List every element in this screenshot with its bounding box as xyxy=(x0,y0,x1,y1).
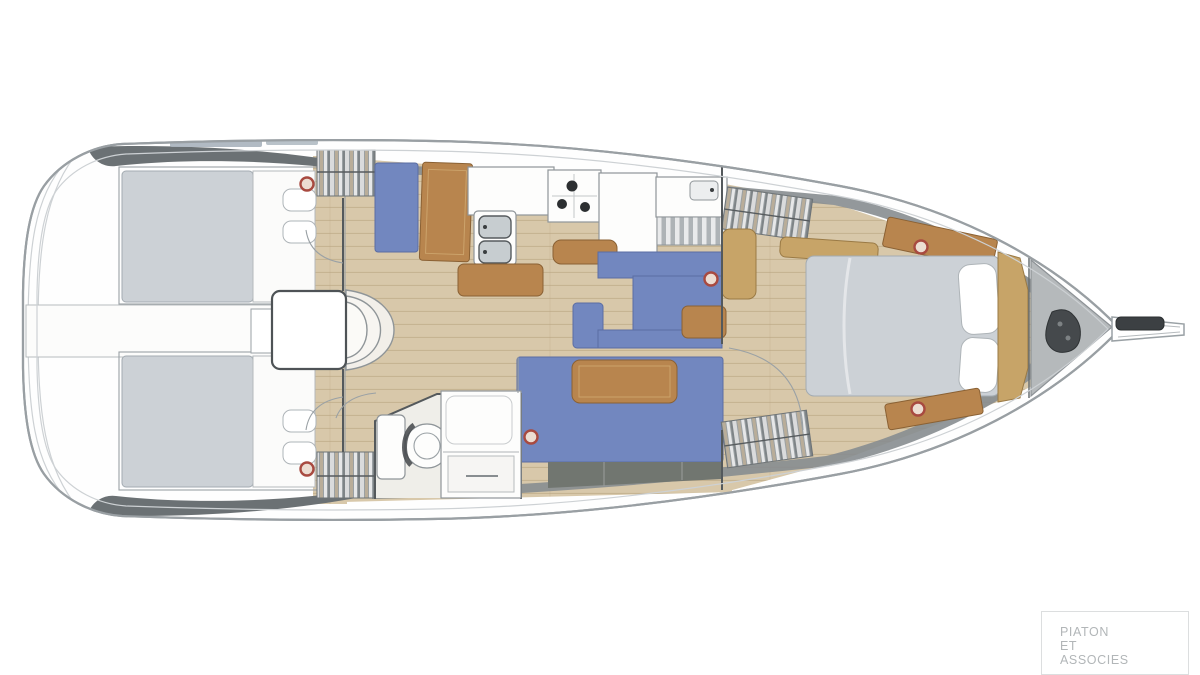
companionway xyxy=(251,290,394,370)
watermark-line: PIATON xyxy=(1060,625,1188,639)
pillow xyxy=(283,442,316,464)
faucet xyxy=(483,225,487,229)
galley-sink xyxy=(474,211,516,265)
yacht-deck-plan-svg xyxy=(0,0,1200,675)
pillow xyxy=(283,221,316,243)
galley-counter xyxy=(468,167,554,215)
faucet xyxy=(483,250,487,254)
faucet xyxy=(710,188,714,192)
porthole-icon xyxy=(915,241,928,254)
aft-cabin-starboard-bed xyxy=(122,356,253,487)
porthole-icon xyxy=(301,178,314,191)
pillow xyxy=(958,263,1001,335)
hanging-clothes xyxy=(317,452,375,498)
porthole-icon xyxy=(912,403,925,416)
dinette-bench xyxy=(598,252,722,278)
anchor-windlass xyxy=(1116,317,1164,330)
designer-watermark: PIATON ET ASSOCIES xyxy=(1041,611,1189,675)
watermark-line: ASSOCIES xyxy=(1060,653,1188,667)
galley-cabinet xyxy=(458,264,543,296)
hanging-clothes xyxy=(317,150,375,196)
yacht-deck-plan: PIATON ET ASSOCIES xyxy=(0,0,1200,675)
chart-table xyxy=(419,162,472,262)
pillow xyxy=(958,337,1000,394)
saloon-sofa xyxy=(517,357,723,462)
pillow xyxy=(283,410,316,432)
nav-seat xyxy=(375,163,418,252)
watermark-line: ET xyxy=(1060,639,1188,653)
porthole-icon xyxy=(525,431,538,444)
aft-hanging-locker-port xyxy=(317,150,375,196)
companionway-hatch xyxy=(272,291,346,369)
vanity-drawer xyxy=(448,456,514,492)
galley-stove xyxy=(548,170,601,222)
chain-highlight xyxy=(1058,322,1063,327)
bed-headboard xyxy=(998,252,1028,402)
toilet-cistern xyxy=(377,415,405,479)
porthole-icon xyxy=(301,463,314,476)
aft-cabin-port-bed xyxy=(122,171,253,302)
chain-highlight xyxy=(1066,336,1071,341)
aft-corridor xyxy=(26,305,278,357)
aft-hanging-locker-starboard xyxy=(317,452,375,498)
burner xyxy=(557,199,567,209)
dinette-table xyxy=(682,306,726,338)
porthole-icon xyxy=(705,273,718,286)
fwd-seat xyxy=(722,229,756,299)
bottle-rack xyxy=(657,217,725,245)
pillow xyxy=(283,189,316,211)
burner xyxy=(580,202,590,212)
burner xyxy=(567,181,578,192)
fwd-island-bed xyxy=(806,252,1028,402)
